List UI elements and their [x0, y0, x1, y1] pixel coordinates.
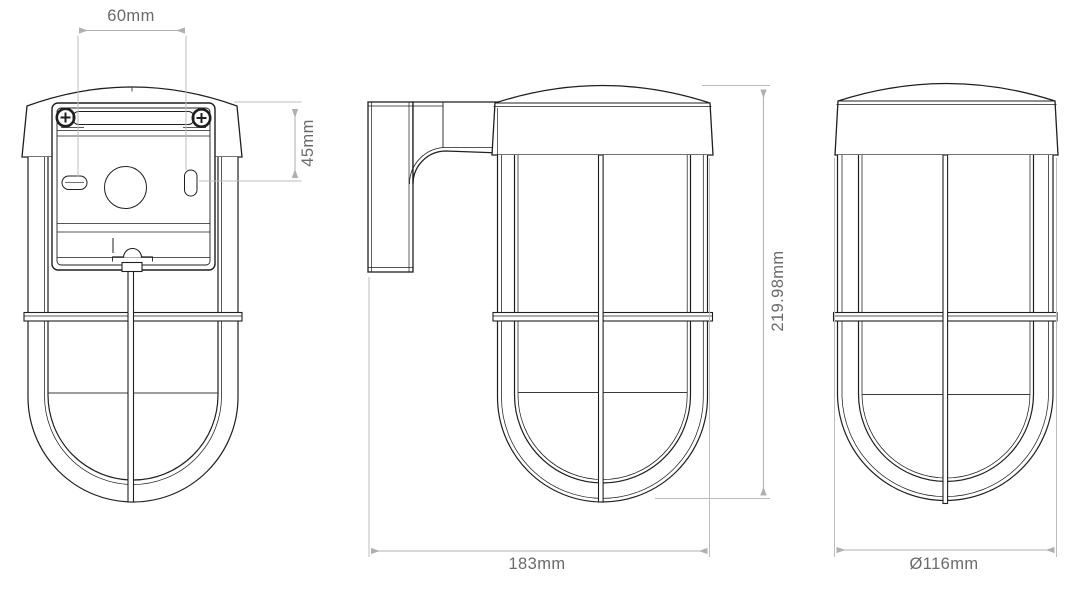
front-view-mounting-plate-drawing — [22, 87, 242, 502]
side-view-drawing — [368, 86, 713, 503]
dimension-label-overall-depth: 183mm — [477, 554, 597, 574]
dimension-label-hole-vertical-offset: 45mm — [298, 103, 318, 183]
technical-drawing-page: 60mm 45mm 219.98mm 183mm Ø116mm — [0, 0, 1087, 593]
dimension-label-hole-spacing: 60mm — [76, 6, 186, 26]
drawing-linework — [0, 0, 1087, 593]
lamp-front-view-drawing — [834, 84, 1059, 504]
dimension-label-overall-height: 219.98mm — [768, 236, 788, 346]
dimension-label-diameter: Ø116mm — [884, 554, 1004, 574]
